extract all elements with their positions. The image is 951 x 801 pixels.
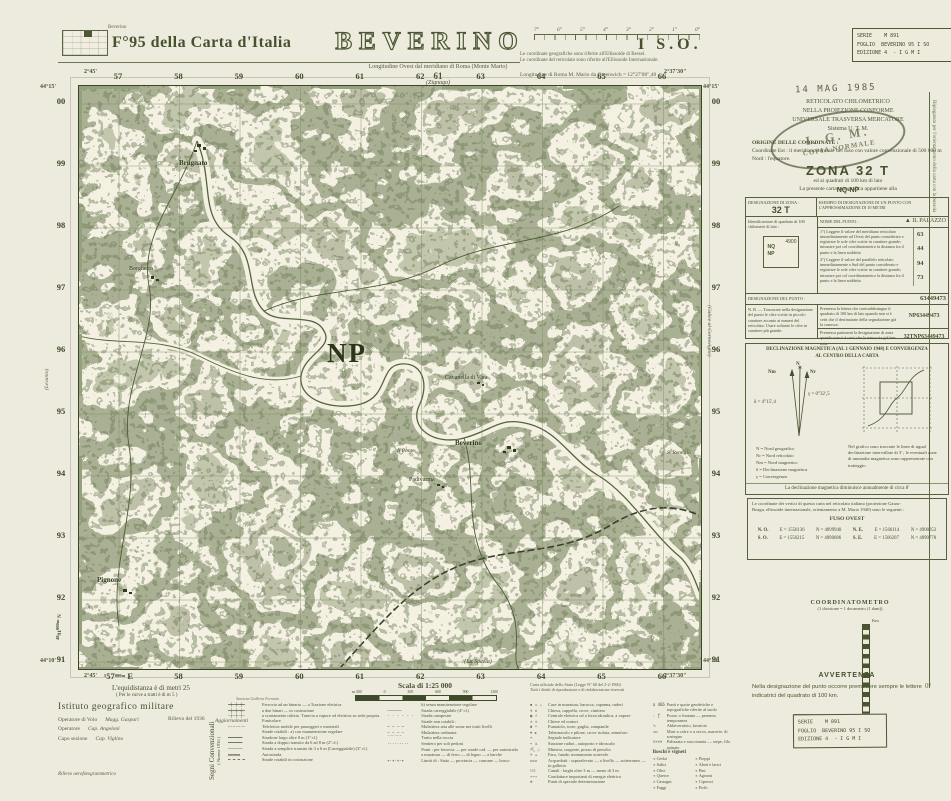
scale-tick: 600 <box>435 690 441 694</box>
grid-number: 64 <box>530 671 552 681</box>
legend-row: ⌔ ⚓ Stazione radiot., autoporto e idrosc… <box>530 741 647 746</box>
protractor-tick-label: 1° <box>672 27 677 33</box>
legend-symbol: a 466 <box>653 702 667 707</box>
grid-number: 98 <box>705 220 727 230</box>
date-stamp: 14 MAG 1985 <box>795 83 877 96</box>
legend-row: ▭▭ Muri a calce o a secco, macerie, di s… <box>653 729 733 739</box>
edge-band-top <box>79 86 701 89</box>
instruction-1: 1°) Leggere il valore del meridiano reti… <box>820 229 911 255</box>
legend-row: a muratura — di ferro — di legno — a bar… <box>387 752 524 757</box>
vertex-row: S. O. E = 1556215 N = 4890686 <box>752 536 847 543</box>
legend-row: ¨¨¨¨¨¨ Tratto nella roccia <box>387 735 524 740</box>
map-sheet-page: Beverino F°95 della Carta d'Italia BEVER… <box>0 0 951 801</box>
place-label: Cavanella di Vara <box>445 375 488 381</box>
declination-note: Nel grafico sono tracciate le linee di u… <box>848 444 940 469</box>
utm-line: NELLA PROIEZIONE CONFORME <box>752 107 944 116</box>
institute-name: Istituto geografico militare <box>58 702 174 712</box>
legend-symbol: ⌁⌁⌁ <box>530 774 548 779</box>
series-stamp-box-bottom: SERIE M 891 FOGLIO BEVERINO 95 I SO EDIZ… <box>793 714 887 748</box>
corner-longitude-nw: 2°45' <box>84 69 97 75</box>
legend-symbol: ✝ ⌂ <box>530 708 548 713</box>
grid-number: 94 <box>705 468 727 478</box>
edge-band-left <box>79 86 82 669</box>
easting-label: 557000m E <box>104 671 133 681</box>
legend-row: – – – – Mulattiera ordinaria <box>387 730 524 735</box>
grid-number: 63 <box>470 671 492 681</box>
scale-tick: 900 <box>463 690 469 694</box>
legend-row: ∿ Abbeveratoio, lavatoio <box>653 723 733 728</box>
declination-legend-line: γ = Convergenza <box>756 474 807 481</box>
legend-column-points-woods: a 466 Punti e quote geodetiche e topogra… <box>653 702 733 791</box>
protractor-tick-label: 3° <box>626 27 631 33</box>
place-label: Il Ponte <box>397 448 415 454</box>
staff-row: OperatoreCap. Angeloni <box>58 725 139 734</box>
legend-row: ☀ ▴ Faro, fanale, monumento notevole <box>530 752 647 757</box>
header-rule <box>58 62 520 63</box>
scale-tick: m.300 <box>352 690 362 694</box>
grid-number: 65 <box>591 71 613 81</box>
grid-numbers-bottom: 585960616263646566 <box>107 671 673 681</box>
wood-type: Fichi <box>695 785 733 791</box>
scale-bar <box>355 695 497 701</box>
northing-label: 4891000m N <box>55 614 63 640</box>
coordinatometro: COORDINATOMETRO (1 divisione = 1 decamet… <box>770 600 930 611</box>
grid-number: 00 <box>705 96 727 106</box>
legend-symbol: - - - - - - <box>387 713 421 718</box>
copyright-note: Carta ufficiale dello Stato (Legge N° 68… <box>530 682 730 693</box>
adjacent-sheet-left: (Levanto) <box>44 369 50 390</box>
grid-number: 99 <box>705 158 727 168</box>
legend-symbol: +·+·+·+ <box>387 758 421 763</box>
legend-column-head: Stazione Galleria Fermata <box>236 696 279 701</box>
sheet-title: F°95 della Carta d'Italia <box>112 34 291 52</box>
legend-row: ═ ═ ═ ═ Strade rotabili in costruzione <box>228 757 381 762</box>
grid-number: 93 <box>50 530 72 540</box>
grid-number: 93 <box>705 530 727 540</box>
legend-symbol: ┄┼┄┼┄┼┄ <box>228 713 262 718</box>
survey-staff: Operatore di VoloMagg. Gaspari Operatore… <box>58 716 139 744</box>
grid-number: 59 <box>228 71 250 81</box>
square-letters: NQ-NP <box>752 187 944 194</box>
corner-latitude-ne: 44°15' <box>703 84 719 90</box>
series-stamp-box-top: SERIE M 891 FOGLIO BEVERINO 95 I SO EDIZ… <box>852 28 951 62</box>
grid-numbers-left: 00999897969594939291 <box>50 96 72 664</box>
declination-legend-line: Nm = Nord magnetico <box>756 460 807 467</box>
coordinate-origin-block: ORIGINE DELLE COORDINATE : Coordinate Es… <box>752 140 944 164</box>
scale-tick: 0 <box>384 690 386 694</box>
legend-symbol: ▬▬▬▬▬ <box>228 752 262 757</box>
legend-row: → Segnale indicatore <box>530 735 647 740</box>
vertex-row: N. E. E = 1566114 N = 4900053 <box>847 528 942 535</box>
legend-row: Ponti : per ferrovia — per strade ord. —… <box>387 747 524 752</box>
legend-symbol: ═ ═ ═ ═ <box>228 757 262 762</box>
grid-number: 00 <box>50 96 72 106</box>
fuso-label: FUSO OVEST <box>752 516 942 524</box>
zone-designation: ZONA 32 T <box>752 163 944 178</box>
grid-number: 63 <box>470 71 492 81</box>
square-diagram: NQ NP 4900 <box>763 236 799 268</box>
legend-row: ≍≍≍ Acquedotti : sopraelevato — a livell… <box>530 758 647 768</box>
protractor-tick-label: 6° <box>557 27 562 33</box>
edge-band-right <box>699 86 702 669</box>
scale-tick: 1200 <box>490 690 498 694</box>
legend-row: ◉ ⚡ Centrale elettrica od a forza idraul… <box>530 713 647 718</box>
grid-number: 58 <box>167 671 189 681</box>
grid-number: 62 <box>409 671 431 681</box>
legend-symbol: ────── <box>228 746 262 751</box>
legend-symbol: ≍≍≍ <box>530 758 548 763</box>
place-label: Padivarma <box>409 477 435 483</box>
legend-row: - - - - - - Strada campestre <box>387 713 524 718</box>
legend-row: ⌖ ✚ Tabernacolo e pilone, croce isolata,… <box>530 730 647 735</box>
grid-number: 60 <box>288 671 310 681</box>
legend-symbol: ▮ ◠ <box>530 724 548 729</box>
origin-line: Coordinate Est : il meridiano centrale d… <box>752 148 944 156</box>
corner-longitude-sw: 2°45' <box>84 673 97 679</box>
designation-table: DESIGNAZIONE DI ZONA : 32 T ESEMPIO DI D… <box>745 197 949 339</box>
equidistance-subnote: ( Per le curve a tratti è di m 5 ) <box>116 693 177 698</box>
protractor-tick-label: 0° <box>695 27 700 33</box>
grid-number: 57 <box>107 71 129 81</box>
grid-number: 99 <box>50 158 72 168</box>
protractor-tick-label: 2° <box>649 27 654 33</box>
legend-row: ⌇⌇⌇ Canali : larghi oltre 3 m — meno di … <box>530 768 647 773</box>
instruction-2: 2°) Leggere il valore del parallelo reti… <box>820 257 911 283</box>
index-grid-highlight <box>84 31 92 37</box>
grid-number: 92 <box>50 592 72 602</box>
vertex-row: S. E. E = 1566207 N = 4890778 <box>847 536 942 543</box>
grid-number: 58 <box>167 71 189 81</box>
zone-cell: DESIGNAZIONE DI ZONA : 32 T <box>746 198 817 216</box>
legend-row: ══════ Stradone largo oltre 8 m (1ª cl.) <box>228 735 381 740</box>
utm-line: RETICOLATO CHILOMETRICO <box>752 98 944 107</box>
protractor-tick-label: 4° <box>603 27 608 33</box>
example-numbers: 6344 9473 <box>913 228 927 286</box>
compass-fold-label: Ripiegatura per l'orientamento della car… <box>931 100 936 212</box>
vertices-box: Le coordinate dei vertici di questa cart… <box>747 498 947 560</box>
scale-title: Scala di 1:25 000 <box>360 681 490 690</box>
legend-row: ✝ ⌂ Chiesa, cappella, croce, cimitero <box>530 708 647 713</box>
grid-number: 64 <box>530 71 552 81</box>
legend-row: ×××× Palizzata e staccionata — siepe, fi… <box>653 739 733 749</box>
legend-row: Strade rotabili : a) con manutenzione re… <box>228 729 381 734</box>
protractor-scale: 7°6°5°4°3°2°1°0° <box>534 27 700 40</box>
designation-result-row: DESIGNAZIONE DEL PUNTO :63449473 <box>746 294 948 305</box>
declination-legend-line: Nr = Nord reticolato <box>756 453 807 460</box>
equidistance-note: L'equidistanza è di metri 25 <box>112 684 190 692</box>
legend-symbol: ▪ ▫ ▵ <box>530 702 548 707</box>
legend-row: a 466 Punti e quote geodetiche e topogra… <box>653 702 733 712</box>
legend-row: ⌁⌁⌁ Condutture importanti di energia ele… <box>530 774 647 779</box>
legend-row: Strade non rotabili : <box>387 719 524 724</box>
corner-longitude-ne: 2°37'30" <box>664 69 686 75</box>
grid-numbers-top: 57585960616263646566 <box>107 71 673 81</box>
grid-number: 62 <box>409 71 431 81</box>
legend-row: ────── Strada carreggiabile (4ª cl.) <box>387 708 524 713</box>
legend-symbol: ········· <box>387 741 421 746</box>
survey-year: Rilievo del 1936 <box>168 716 205 722</box>
legend-row: ✛ ✛ Chiese ed oratori <box>530 719 647 724</box>
index-caption: Beverino <box>108 25 126 30</box>
grid-number: 61 <box>349 671 371 681</box>
declination-legend-line: δ = Declinazione magnetica <box>756 467 807 474</box>
legend-symbol: ◦ ƒ <box>653 713 667 718</box>
grid-number: 95 <box>50 406 72 416</box>
compass-fold-line <box>929 92 930 688</box>
legend-symbol: ¨¨¨¨¨¨ <box>387 735 421 740</box>
grid-number: 59 <box>228 671 250 681</box>
legend-row: ▮ ◠ Fumaiolo, torre, guglia, campanile <box>530 724 647 729</box>
legend-row: ─ ─ ─ ─ Mulattiera atta alle some nei tr… <box>387 724 524 729</box>
legend-column-railways: ━┿━┿━┿━ Ferrovia ad un binario — a Trazi… <box>228 702 381 791</box>
quadrati-note: ed ai quadrati di 100 km di lato <box>752 178 944 184</box>
delta-value: δ = 4°15',4 <box>754 400 776 405</box>
adjacent-sheet-bottom: (La Spezia) <box>388 659 568 665</box>
grid-number: 60 <box>288 71 310 81</box>
edge-band-bottom <box>79 667 701 670</box>
declination-box: DECLINAZIONE MAGNETICA (AL 1 GENNAIO 194… <box>745 343 949 495</box>
legend-column-roads: b) senza manutenzione regolare ────── St… <box>387 702 524 791</box>
conventional-signs-legend: ━┿━┿━┿━ Ferrovia ad un binario — a Trazi… <box>228 702 733 791</box>
place-label: Beverino <box>455 439 482 447</box>
place-label: S. Remigio <box>667 450 691 456</box>
corner-longitude-se: 2°37'30" <box>664 673 686 679</box>
legend-row: ⊕ Punti di speciale determinazione <box>530 779 647 784</box>
legend-row: ━┿━┿━┿━ Ferrovia ad un binario — a Trazi… <box>228 702 381 707</box>
legend-row: ········· Sentiero per soli pedoni <box>387 741 524 746</box>
utm-line: UNIVERSALE TRASVERSA MERCATORE <box>752 116 944 125</box>
adjacent-sheet-right: (Calice al Cornoviglio) <box>706 305 712 357</box>
legend-symbol: ━╪━╪━╪━ <box>228 708 262 713</box>
legend-symbol: ∿ <box>653 723 667 728</box>
legend-symbol: ⛏ ◌ <box>530 747 548 752</box>
legend-symbol: ⌇⌇⌇ <box>530 768 548 773</box>
legend-row: ────── Strada a semplice transito da 3 a… <box>228 746 381 751</box>
grid-square-designation: NP <box>327 338 367 369</box>
woods-title: Boschi e vigneti <box>653 750 733 755</box>
identification-cell: Identificazione di quadrato di 100 chilo… <box>746 217 818 293</box>
declination-legend: N = Nord geograficoNr = Nord reticolatoN… <box>756 446 807 480</box>
grid-number: 65 <box>591 671 613 681</box>
legend-symbol: ─ ─ ─ ─ <box>387 724 421 729</box>
legend-symbol: ⊕ <box>530 779 548 784</box>
grid-number: 95 <box>705 406 727 416</box>
place-label: Pignone <box>97 576 121 584</box>
map-terrain-svg <box>79 86 701 669</box>
place-label: Brugnato <box>179 159 207 167</box>
grid-number: 97 <box>705 282 727 292</box>
legend-row: ⛏ ◌ Miniera, sorgente, pozzo di petrolio <box>530 747 647 752</box>
legend-row: b) senza manutenzione regolare <box>387 702 524 707</box>
legend-symbol: ⌔ ⚓ <box>530 741 548 746</box>
legend-row: +·+·+·+ Limiti di : Stato — provincia — … <box>387 758 524 763</box>
declination-legend-line: N = Nord geografico <box>756 446 807 453</box>
wood-type: Faggi <box>653 785 691 791</box>
protractor-tick-label: 5° <box>580 27 585 33</box>
legend-symbol: → <box>530 735 548 740</box>
compass-fold-degree: 0° <box>925 682 931 690</box>
legend-symbol: ⌖ ✚ <box>530 730 548 735</box>
protractor-ruler <box>534 34 700 40</box>
grid-number: 94 <box>50 468 72 478</box>
gamma-value: γ = 0°32',5 <box>808 392 830 397</box>
corner-latitude-se: 44°10' <box>703 658 719 664</box>
corner-latitude-nw: 44°15' <box>40 84 56 90</box>
scale-tick: 300 <box>407 690 413 694</box>
longitude-note: Longitudine Ovest dal meridiano di Roma … <box>308 64 568 70</box>
legend-row: ─·─·─·─ Teleferica mobile per passeggeri… <box>228 724 381 729</box>
map-body: Brugnato Borghetto Cavanella di Vara Bev… <box>78 85 702 670</box>
legend-symbol: ━┿━┿━┿━ <box>228 702 262 707</box>
legend-symbol: ✛ ✛ <box>530 719 548 724</box>
legend-symbol: ══════ <box>228 735 262 740</box>
origin-title: ORIGINE DELLE COORDINATE : <box>752 140 944 148</box>
legend-symbol: – – – – <box>387 730 421 735</box>
legend-symbol: ══════ <box>228 740 262 745</box>
vertex-row: N. O. E = 1556136 N = 4899940 <box>752 528 847 535</box>
legend-row: ━╪━╪━╪━ a due binari — in costruzione <box>228 708 381 713</box>
legend-symbol: ☀ ▴ <box>530 752 548 757</box>
grid-number: 97 <box>50 282 72 292</box>
legend-title-vertical: Segni Convenzionali( Norme 1936 ) <box>208 721 221 780</box>
protractor-tick-label: 7° <box>534 27 539 33</box>
corner-latitude-sw: 44°10' <box>40 658 56 664</box>
utm-projection-block: RETICOLATO CHILOMETRICONELLA PROIEZIONE … <box>752 98 944 134</box>
legend-symbol: ▭▭ <box>653 729 667 734</box>
avvertenza-block: AVVERTENZA Nella designazione del punto … <box>752 672 942 702</box>
legend-symbol: ────── <box>387 708 421 713</box>
grid-numbers-right: 00999897969594939291 <box>705 96 727 664</box>
isogonic-diagram <box>858 364 936 434</box>
grid-number: 61 <box>349 71 371 81</box>
legend-row: ┄┼┄┼┄┼┄ a scartamento ridotto. Tranvia a… <box>228 713 381 723</box>
scale-bar-ticks: m.30003006009001200 <box>352 690 498 694</box>
legend-symbol: ◉ ⚡ <box>530 713 548 718</box>
annual-variation-note: La declinazione magnetica diminuisce ann… <box>746 483 948 491</box>
grid-number: 98 <box>50 220 72 230</box>
legend-row: ▬▬▬▬▬ Autostrada <box>228 752 381 757</box>
legend-row: ◦ ƒ Pozzo o fontana — perenne, temporane… <box>653 713 733 723</box>
legend-row: ══════ Strada a doppio transito da 6 ad … <box>228 740 381 745</box>
aero-survey-note: Rilievo aerofotogrammetrico <box>58 772 116 777</box>
legend-column-buildings: ▪ ▫ ▵ Case in muratura, baracca, capanna… <box>530 702 647 791</box>
nb-cell: N. B. — Trascurare nella designazione de… <box>746 305 818 339</box>
legend-symbol: ×××× <box>653 739 667 744</box>
grid-number: 92 <box>705 592 727 602</box>
utm-line: Sistema U. T. M. <box>752 125 944 134</box>
legend-symbol: ─·─·─·─ <box>228 724 262 729</box>
place-label: Borghetto <box>129 266 153 272</box>
staff-row: Operatore di VoloMagg. Gaspari <box>58 716 139 725</box>
grid-number: 96 <box>50 344 72 354</box>
staff-row: Capo sezioneCap. Viglino <box>58 735 139 744</box>
legend-row: ▪ ▫ ▵ Case in muratura, baracca, capanna… <box>530 702 647 707</box>
